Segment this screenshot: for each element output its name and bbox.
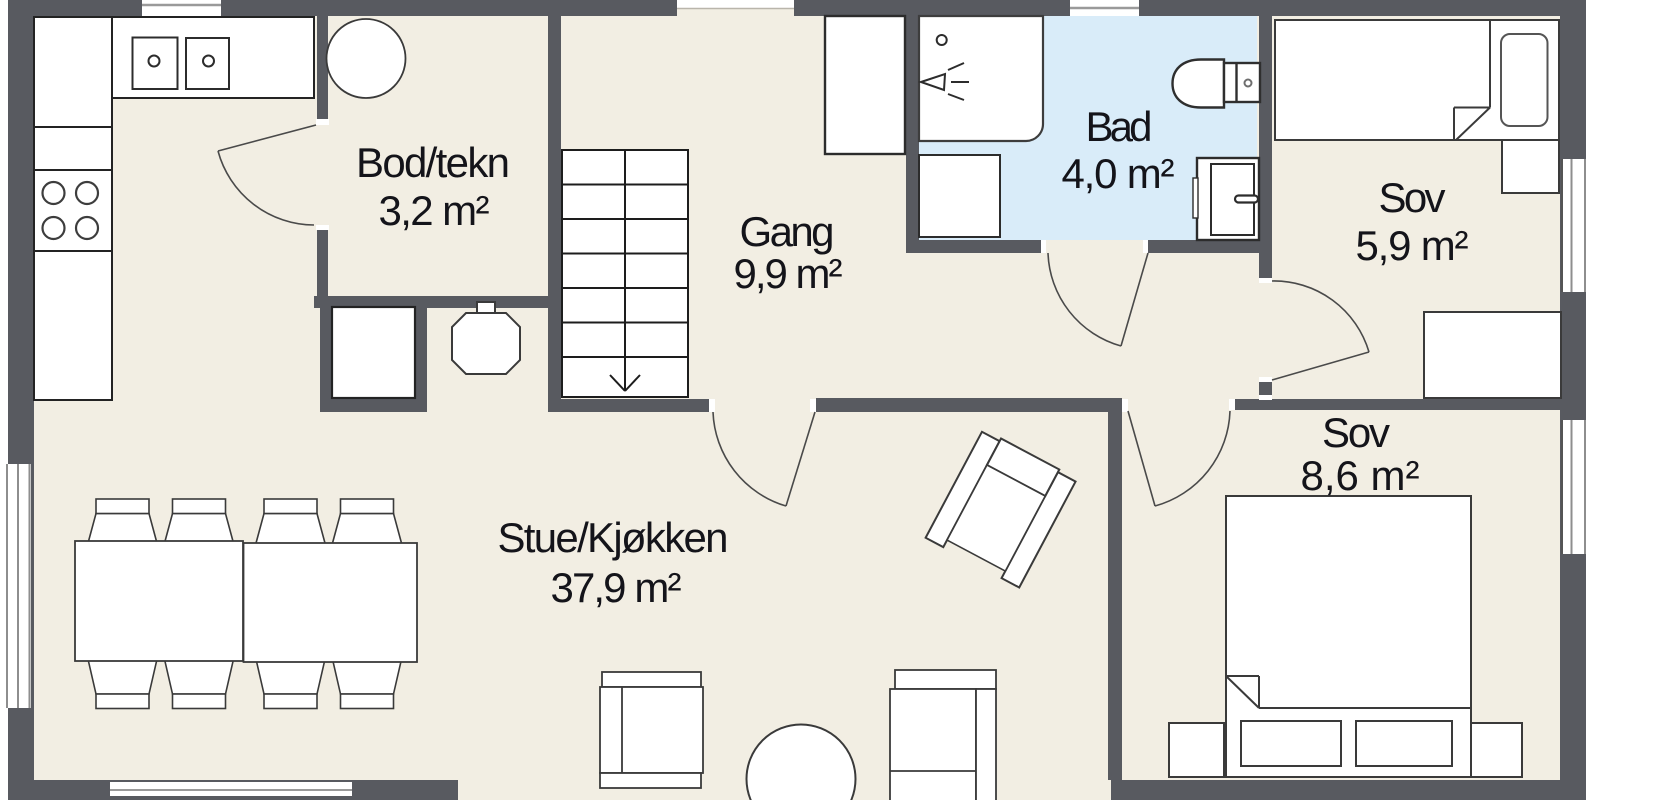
svg-text:Stue/Kjøkken: Stue/Kjøkken — [498, 514, 729, 561]
svg-text:Sov: Sov — [1379, 174, 1446, 221]
svg-text:Bod/tekn: Bod/tekn — [356, 139, 510, 186]
svg-text:8,6 m²: 8,6 m² — [1301, 452, 1420, 499]
svg-text:4,0 m²: 4,0 m² — [1062, 150, 1175, 197]
svg-text:5,9 m²: 5,9 m² — [1356, 222, 1469, 269]
svg-text:Bad: Bad — [1086, 103, 1153, 150]
svg-text:Gang: Gang — [740, 208, 835, 255]
svg-text:Sov: Sov — [1322, 409, 1390, 456]
svg-text:37,9 m²: 37,9 m² — [551, 564, 682, 611]
svg-text:3,2 m²: 3,2 m² — [379, 187, 490, 234]
svg-text:9,9 m²: 9,9 m² — [734, 250, 843, 297]
